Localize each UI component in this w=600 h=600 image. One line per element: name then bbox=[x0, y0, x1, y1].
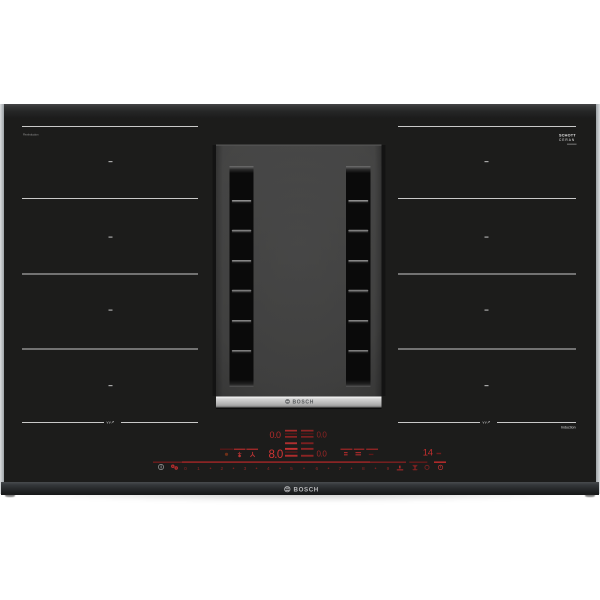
svg-text:0.0: 0.0 bbox=[317, 430, 328, 439]
svg-text:7: 7 bbox=[339, 466, 342, 472]
svg-text:Induction: Induction bbox=[561, 426, 576, 430]
svg-text:1: 1 bbox=[197, 466, 200, 472]
svg-text:BOSCH: BOSCH bbox=[294, 486, 319, 493]
svg-text:8: 8 bbox=[362, 466, 365, 472]
svg-text:8.0: 8.0 bbox=[269, 449, 283, 461]
svg-text:5: 5 bbox=[290, 466, 293, 472]
svg-text:0: 0 bbox=[184, 466, 187, 472]
svg-text:vv↗: vv↗ bbox=[483, 420, 491, 424]
svg-text:14: 14 bbox=[423, 446, 433, 457]
svg-text:9: 9 bbox=[387, 466, 390, 472]
svg-text:CERAN: CERAN bbox=[559, 138, 575, 142]
svg-text:4: 4 bbox=[267, 466, 270, 472]
svg-text:0.0: 0.0 bbox=[317, 449, 328, 458]
svg-text:2: 2 bbox=[220, 466, 223, 472]
svg-text:3: 3 bbox=[244, 466, 247, 472]
svg-text:BOSCH: BOSCH bbox=[293, 400, 315, 406]
svg-text:0.0: 0.0 bbox=[270, 430, 282, 440]
svg-text:6: 6 bbox=[315, 466, 318, 472]
svg-text:vv↗: vv↗ bbox=[107, 420, 115, 424]
svg-text:FlexInduction: FlexInduction bbox=[23, 132, 39, 136]
